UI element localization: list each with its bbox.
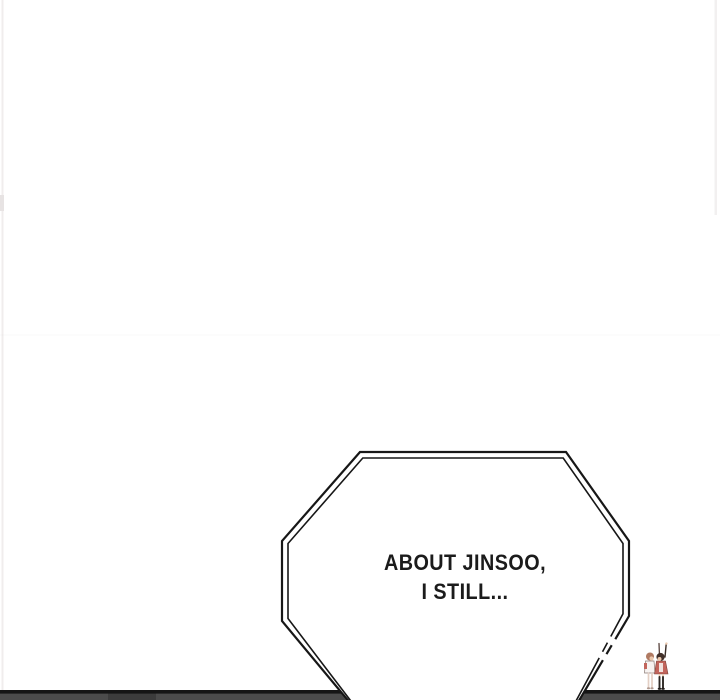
chibi-right-stockings — [660, 677, 664, 688]
right-edge-artifact — [715, 0, 718, 215]
speech-bubble-line-2: I STILL... — [321, 577, 609, 606]
divider-bar-smudge — [108, 693, 156, 700]
chibi-left-foot — [647, 687, 650, 689]
left-edge-artifact — [2, 0, 4, 690]
comic-panel: ABOUT JINSOO, I STILL... — [0, 0, 720, 700]
speech-bubble-text: ABOUT JINSOO, I STILL... — [321, 548, 609, 606]
chibi-right-apron — [659, 663, 663, 672]
chibi-right-foot — [661, 688, 665, 690]
speech-bubble-line-1: ABOUT JINSOO, — [321, 548, 609, 577]
chibi-left-legs — [649, 674, 653, 688]
panel-seam — [0, 335, 720, 336]
left-edge-artifact-smudge — [0, 195, 4, 211]
chibi-left-face — [649, 656, 653, 660]
chibi-characters-figure — [644, 642, 668, 690]
chibi-left-accent — [644, 663, 647, 669]
chibi-hand — [665, 642, 667, 644]
chibi-right-face — [658, 657, 662, 661]
chibi-left-foot — [650, 687, 653, 689]
chibi-right-foot — [658, 688, 662, 690]
chibi-raised-arm — [665, 644, 666, 657]
